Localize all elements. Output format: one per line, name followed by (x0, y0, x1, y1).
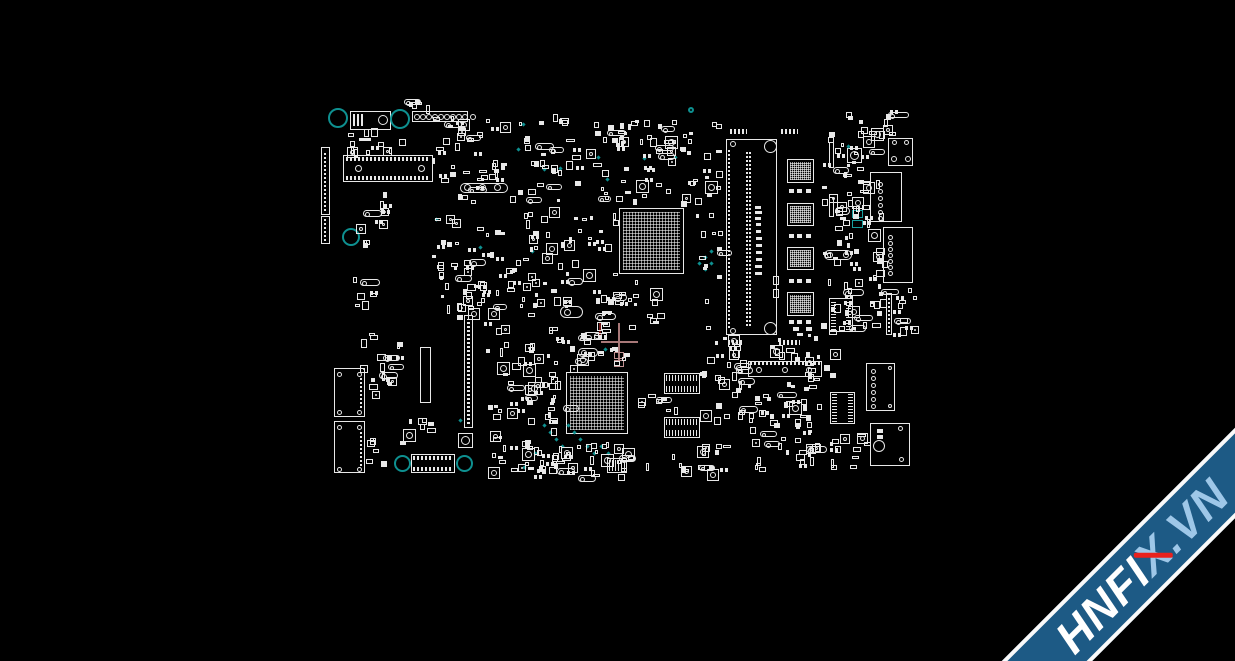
pad[interactable] (797, 320, 802, 324)
smd-part[interactable] (750, 427, 756, 434)
smd-part[interactable] (451, 165, 455, 169)
smd-part[interactable] (808, 334, 811, 337)
smd-part[interactable] (540, 460, 544, 466)
smd-part[interactable] (733, 350, 740, 358)
smd-part[interactable] (427, 428, 436, 433)
smd-part[interactable] (775, 349, 780, 356)
pad[interactable] (797, 189, 802, 193)
smd-part[interactable] (552, 168, 556, 174)
pad-circle[interactable] (871, 404, 876, 409)
smd-part[interactable] (719, 379, 730, 390)
smd-part[interactable] (493, 437, 501, 442)
smd-part[interactable] (591, 443, 597, 449)
smd-part[interactable] (845, 310, 848, 316)
smd-part[interactable] (494, 405, 498, 408)
pad-circle[interactable] (730, 328, 736, 334)
smd-part[interactable] (814, 336, 818, 341)
smd-part[interactable] (494, 169, 499, 173)
pad-circle[interactable] (782, 367, 788, 373)
smd-part[interactable] (370, 291, 378, 295)
smd-part[interactable] (598, 247, 606, 251)
smd-part[interactable] (624, 353, 630, 357)
memory-chip[interactable] (787, 159, 814, 183)
smd-part[interactable] (486, 349, 490, 353)
smd-part[interactable] (716, 444, 722, 449)
pad-circle[interactable] (891, 156, 897, 162)
smd-part[interactable] (830, 442, 833, 446)
smd-part[interactable] (603, 137, 607, 143)
smd-part[interactable] (853, 215, 859, 219)
smd-part[interactable] (360, 279, 380, 286)
smd-part[interactable] (565, 305, 568, 308)
smd-part[interactable] (590, 456, 594, 465)
smd-part[interactable] (433, 117, 440, 121)
smd-part[interactable] (717, 275, 722, 279)
smd-part[interactable] (367, 440, 375, 447)
smd-part[interactable] (823, 163, 831, 167)
smd-part[interactable] (602, 311, 605, 316)
pad[interactable] (789, 320, 794, 324)
pad-circle[interactable] (871, 397, 876, 402)
smd-part[interactable] (369, 333, 375, 336)
smd-part[interactable] (463, 171, 470, 174)
smd-part[interactable] (557, 199, 560, 202)
smd-part[interactable] (848, 116, 853, 120)
smd-part[interactable] (584, 352, 592, 356)
smd-part[interactable] (831, 465, 837, 470)
smd-part[interactable] (482, 293, 490, 297)
pad[interactable] (756, 251, 762, 254)
smd-part[interactable] (438, 151, 446, 155)
smd-part[interactable] (496, 257, 504, 261)
smd-part[interactable] (837, 240, 842, 246)
pad[interactable] (756, 223, 761, 226)
smd-part[interactable] (492, 453, 496, 458)
smd-part[interactable] (481, 298, 485, 303)
pad-circle[interactable] (357, 467, 362, 472)
smd-part[interactable] (499, 460, 506, 464)
smd-part[interactable] (829, 194, 838, 203)
smd-part[interactable] (724, 414, 730, 419)
smd-part[interactable] (865, 216, 873, 220)
smd-part[interactable] (829, 330, 837, 335)
pad[interactable] (755, 272, 762, 275)
smd-part[interactable] (717, 250, 732, 256)
pad[interactable] (797, 234, 802, 238)
smd-part[interactable] (699, 256, 706, 260)
smd-part[interactable] (872, 323, 881, 328)
smd-part[interactable] (781, 437, 786, 441)
smd-part[interactable] (700, 410, 712, 422)
smd-part[interactable] (455, 143, 460, 151)
smd-part[interactable] (415, 100, 420, 105)
smd-part[interactable] (716, 186, 721, 190)
pad-circle[interactable] (871, 383, 876, 388)
smd-part[interactable] (568, 463, 578, 473)
pad-circle[interactable] (470, 114, 476, 120)
smd-part[interactable] (620, 302, 628, 306)
pad-circle[interactable] (871, 376, 876, 381)
smd-part[interactable] (493, 160, 498, 167)
smd-part[interactable] (646, 463, 649, 471)
smd-part[interactable] (834, 259, 841, 266)
smd-part[interactable] (381, 461, 387, 467)
smd-part[interactable] (379, 372, 398, 379)
smd-part[interactable] (583, 269, 596, 282)
smd-part[interactable] (597, 322, 602, 331)
smd-part[interactable] (428, 422, 434, 426)
smd-part[interactable] (432, 158, 435, 164)
smd-part[interactable] (495, 230, 501, 235)
smd-part[interactable] (353, 277, 357, 283)
smd-part[interactable] (661, 126, 675, 132)
smd-part[interactable] (803, 405, 807, 411)
smd-part[interactable] (833, 167, 849, 174)
smd-part[interactable] (778, 338, 781, 342)
smd-part[interactable] (679, 463, 682, 468)
smd-part[interactable] (854, 315, 873, 321)
smd-part[interactable] (869, 149, 885, 155)
smd-part[interactable] (531, 161, 539, 166)
smd-part[interactable] (732, 372, 737, 381)
smd-part[interactable] (720, 468, 728, 472)
smd-part[interactable] (707, 469, 719, 481)
smd-part[interactable] (843, 289, 864, 296)
smd-part[interactable] (532, 279, 540, 287)
smd-part[interactable] (608, 299, 614, 305)
smd-part[interactable] (809, 385, 817, 389)
smd-part[interactable] (397, 342, 403, 347)
smd-part[interactable] (855, 279, 863, 287)
smd-part[interactable] (381, 208, 389, 216)
smd-part[interactable] (825, 253, 831, 258)
smd-part[interactable] (777, 392, 797, 398)
component[interactable] (852, 220, 863, 228)
smd-part[interactable] (643, 154, 651, 158)
smd-part[interactable] (496, 178, 504, 182)
smd-part[interactable] (371, 378, 375, 382)
pad[interactable] (797, 279, 802, 283)
smd-part[interactable] (874, 301, 880, 309)
smd-part[interactable] (437, 245, 445, 249)
pad-circle[interactable] (898, 426, 903, 431)
pad[interactable] (789, 189, 794, 193)
smd-part[interactable] (791, 385, 795, 388)
smd-part[interactable] (723, 445, 731, 448)
smd-part[interactable] (689, 132, 693, 135)
pad-circle[interactable] (355, 165, 362, 172)
pad[interactable] (789, 234, 794, 238)
smd-part[interactable] (546, 232, 550, 238)
smd-part[interactable] (510, 402, 518, 406)
smd-part[interactable] (510, 196, 516, 203)
memory-chip[interactable] (787, 203, 814, 226)
smd-part[interactable] (464, 268, 472, 276)
smd-part[interactable] (486, 233, 489, 237)
smd-part[interactable] (466, 135, 481, 141)
smd-part[interactable] (432, 255, 436, 258)
smd-part[interactable] (520, 304, 523, 308)
smd-part[interactable] (761, 411, 769, 415)
smd-part[interactable] (448, 125, 453, 128)
smd-part[interactable] (371, 146, 379, 150)
smd-part[interactable] (845, 251, 853, 255)
smd-part[interactable] (558, 170, 562, 176)
smd-part[interactable] (706, 326, 711, 330)
smd-part[interactable] (549, 383, 558, 390)
smd-part[interactable] (835, 226, 843, 231)
pad[interactable] (877, 429, 883, 433)
smd-part[interactable] (576, 166, 584, 170)
smd-part[interactable] (438, 262, 444, 271)
smd-part[interactable] (674, 407, 678, 415)
smd-part[interactable] (546, 462, 554, 466)
smd-part[interactable] (595, 450, 598, 454)
smd-part[interactable] (512, 268, 517, 272)
smd-part[interactable] (619, 292, 626, 296)
smd-part[interactable] (526, 220, 530, 229)
smd-part[interactable] (817, 404, 822, 410)
smd-part[interactable] (359, 138, 365, 141)
smd-part[interactable] (534, 246, 538, 250)
smd-part[interactable] (716, 354, 724, 358)
smd-part[interactable] (636, 180, 649, 193)
smd-part[interactable] (861, 155, 869, 159)
smd-part[interactable] (824, 365, 830, 371)
smd-part[interactable] (830, 349, 841, 360)
smd-part[interactable] (653, 321, 659, 324)
smd-part[interactable] (539, 121, 544, 125)
smd-part[interactable] (528, 418, 535, 425)
smd-part[interactable] (635, 280, 638, 285)
smd-part[interactable] (534, 354, 544, 364)
smd-part[interactable] (356, 224, 366, 234)
smd-part[interactable] (728, 335, 740, 347)
pad-circle[interactable] (730, 141, 736, 147)
pad[interactable] (756, 237, 762, 240)
smd-part[interactable] (553, 395, 556, 399)
smd-part[interactable] (556, 461, 565, 464)
pad-circle[interactable] (764, 322, 777, 335)
smd-part[interactable] (657, 313, 665, 319)
smd-part[interactable] (857, 167, 864, 171)
smd-part[interactable] (455, 242, 459, 245)
smd-part[interactable] (445, 283, 449, 290)
smd-part[interactable] (853, 267, 861, 271)
smd-part[interactable] (564, 240, 575, 251)
smd-part[interactable] (488, 467, 500, 479)
smd-part[interactable] (832, 439, 839, 444)
smd-part[interactable] (590, 216, 593, 220)
smd-part[interactable] (516, 260, 521, 266)
smd-part[interactable] (727, 362, 731, 368)
pad-circle[interactable] (378, 115, 388, 125)
smd-part[interactable] (619, 137, 629, 147)
pad-circle[interactable] (888, 366, 892, 370)
smd-part[interactable] (755, 402, 762, 405)
smd-part[interactable] (474, 152, 482, 156)
smd-part[interactable] (501, 165, 505, 170)
smd-part[interactable] (763, 394, 769, 398)
smd-part[interactable] (648, 394, 656, 398)
pad-circle[interactable] (888, 247, 893, 252)
smd-part[interactable] (552, 420, 557, 424)
smd-part[interactable] (752, 439, 760, 447)
smd-part[interactable] (841, 143, 844, 147)
memory-chip[interactable] (787, 247, 814, 270)
smd-part[interactable] (629, 325, 636, 330)
smd-part[interactable] (857, 433, 868, 444)
smd-part[interactable] (714, 417, 721, 425)
smd-part[interactable] (704, 264, 708, 268)
smd-part[interactable] (522, 297, 525, 302)
smd-part[interactable] (716, 171, 723, 178)
smd-part[interactable] (572, 155, 581, 160)
smd-part[interactable] (541, 153, 546, 156)
smd-part[interactable] (479, 170, 487, 173)
smd-part[interactable] (451, 263, 458, 267)
smd-part[interactable] (528, 212, 533, 217)
ic-chip[interactable] (664, 373, 700, 394)
smd-part[interactable] (880, 299, 887, 308)
smd-part[interactable] (681, 149, 686, 152)
pad-circle[interactable] (905, 156, 911, 162)
smd-part[interactable] (847, 192, 852, 196)
smd-part[interactable] (530, 247, 533, 252)
smd-part[interactable] (573, 148, 581, 152)
smd-part[interactable] (703, 169, 711, 173)
smd-part[interactable] (511, 468, 518, 472)
smd-part[interactable] (478, 285, 486, 289)
smd-part[interactable] (476, 186, 484, 190)
pad[interactable] (806, 279, 811, 283)
smd-part[interactable] (738, 412, 743, 420)
smd-part[interactable] (890, 110, 898, 114)
pad-circle[interactable] (871, 390, 876, 395)
smd-part[interactable] (566, 272, 569, 276)
smd-part[interactable] (570, 365, 578, 373)
smd-part[interactable] (849, 233, 853, 239)
bga-chipset[interactable] (619, 208, 684, 274)
smd-part[interactable] (602, 329, 611, 333)
smd-part[interactable] (800, 415, 808, 418)
smd-part[interactable] (764, 441, 780, 447)
smd-part[interactable] (578, 335, 592, 341)
smd-part[interactable] (477, 227, 484, 231)
smd-part[interactable] (808, 430, 812, 433)
pad-circle[interactable] (888, 235, 893, 240)
smd-part[interactable] (760, 431, 777, 437)
smd-part[interactable] (900, 327, 907, 336)
smd-part[interactable] (911, 326, 919, 334)
smd-part[interactable] (364, 129, 369, 137)
smd-part[interactable] (443, 138, 450, 145)
smd-part[interactable] (572, 260, 579, 268)
pad-circle[interactable] (888, 253, 893, 258)
smd-part[interactable] (878, 284, 881, 289)
smd-part[interactable] (451, 116, 454, 121)
smd-part[interactable] (439, 272, 444, 279)
smd-part[interactable] (709, 213, 714, 218)
smd-part[interactable] (551, 289, 557, 293)
smd-part[interactable] (850, 465, 857, 469)
component[interactable] (773, 276, 779, 285)
smd-part[interactable] (471, 200, 476, 204)
smd-part[interactable] (450, 172, 456, 177)
smd-part[interactable] (458, 304, 466, 312)
smd-part[interactable] (457, 315, 463, 320)
smd-part[interactable] (786, 450, 789, 455)
pad[interactable] (756, 230, 761, 233)
smd-part[interactable] (493, 414, 501, 420)
smd-part[interactable] (546, 243, 558, 255)
smd-part[interactable] (796, 423, 800, 429)
memory-chip[interactable] (787, 292, 814, 316)
smd-part[interactable] (908, 288, 912, 293)
smd-part[interactable] (577, 445, 581, 449)
smd-part[interactable] (535, 143, 554, 150)
smd-part[interactable] (603, 322, 610, 327)
smd-part[interactable] (801, 399, 807, 405)
smd-part[interactable] (850, 262, 858, 266)
sodimm-slot[interactable] (726, 139, 777, 335)
smd-part[interactable] (549, 372, 556, 377)
smd-part[interactable] (647, 168, 655, 172)
smd-part[interactable] (523, 258, 529, 261)
smd-part[interactable] (661, 398, 667, 401)
smd-part[interactable] (439, 174, 447, 178)
smd-part[interactable] (383, 147, 392, 156)
smd-part[interactable] (468, 248, 476, 252)
smd-part[interactable] (759, 467, 766, 472)
smd-part[interactable] (707, 194, 712, 197)
pad-circle[interactable] (888, 265, 893, 270)
smd-part[interactable] (876, 180, 880, 189)
pad-circle[interactable] (871, 369, 876, 374)
smd-part[interactable] (804, 387, 809, 391)
smd-part[interactable] (348, 133, 354, 137)
pad-circle[interactable] (756, 367, 762, 373)
smd-part[interactable] (696, 214, 699, 218)
smd-part[interactable] (595, 131, 601, 136)
smd-part[interactable] (387, 355, 392, 361)
pad-circle[interactable] (892, 140, 897, 145)
smd-part[interactable] (850, 146, 858, 150)
pad-circle[interactable] (878, 196, 883, 201)
smd-part[interactable] (588, 237, 592, 240)
smd-part[interactable] (588, 242, 596, 246)
smd-part[interactable] (716, 403, 722, 409)
pad[interactable] (806, 189, 811, 193)
smd-part[interactable] (913, 296, 917, 300)
smd-part[interactable] (541, 216, 548, 223)
smd-part[interactable] (554, 361, 558, 365)
smd-part[interactable] (563, 405, 579, 412)
smd-part[interactable] (457, 133, 465, 141)
smd-part[interactable] (650, 288, 663, 301)
smd-part[interactable] (501, 232, 505, 235)
smd-part[interactable] (528, 189, 536, 195)
pad-circle[interactable] (888, 271, 893, 276)
smd-part[interactable] (666, 409, 671, 412)
smd-part[interactable] (362, 301, 369, 310)
smd-part[interactable] (526, 197, 542, 203)
smd-part[interactable] (441, 178, 449, 183)
smd-part[interactable] (847, 243, 850, 248)
pad-circle[interactable] (888, 259, 893, 264)
smd-part[interactable] (467, 284, 476, 291)
smd-part[interactable] (770, 420, 778, 426)
